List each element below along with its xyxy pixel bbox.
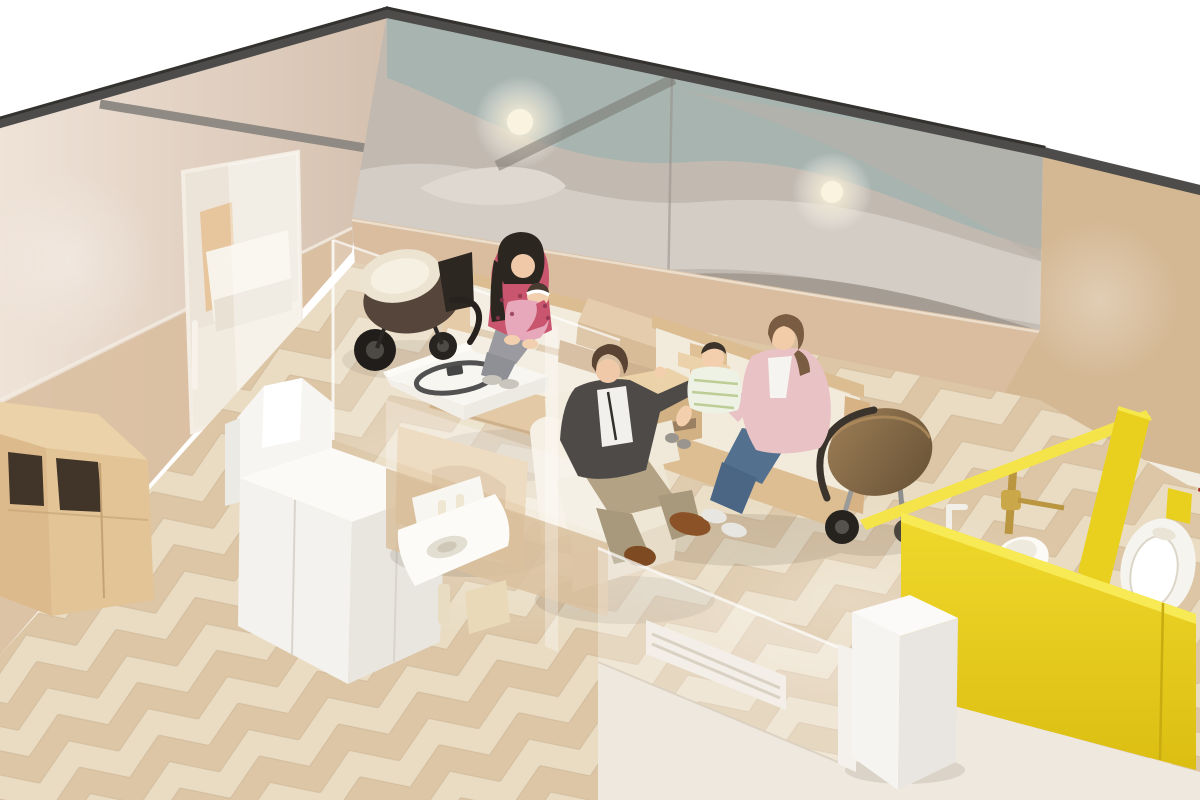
white-bin[interactable] [852, 595, 958, 790]
urinal-sensor [1166, 488, 1192, 524]
mother1-face [511, 254, 535, 278]
cabinet-open-shelf [8, 452, 44, 506]
father-face [596, 359, 620, 383]
render-canvas [0, 0, 1200, 800]
door-handle[interactable] [192, 320, 198, 390]
baby-care-room-render [0, 0, 1200, 800]
cabinet-open-shelf [56, 458, 102, 512]
